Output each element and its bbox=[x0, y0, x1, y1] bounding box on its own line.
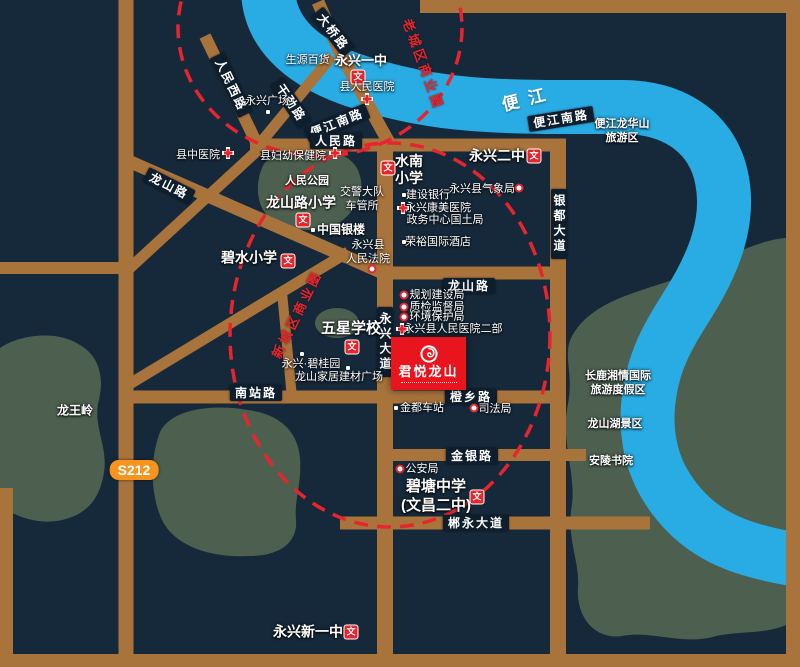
poi-label-line: 人民法院 bbox=[346, 252, 390, 266]
road-label: 人民路 bbox=[310, 133, 362, 149]
poi-label: 县人民医院 bbox=[340, 80, 395, 94]
business-circle-label: 老城区商业圈 bbox=[399, 16, 450, 113]
poi-label: 荣裕国际酒店 bbox=[405, 235, 471, 249]
place-dot-icon bbox=[311, 228, 315, 232]
school-icon: 文 bbox=[281, 254, 296, 269]
poi-label-line: 永兴二中 bbox=[469, 148, 525, 165]
poi-label: 碧塘中学(文昌二中) bbox=[401, 477, 471, 515]
poi-label: 永兴·碧桂园 bbox=[282, 357, 341, 371]
poi-label: 金都车站 bbox=[400, 401, 444, 415]
poi-label-line: 永兴·碧桂园 bbox=[282, 357, 341, 371]
school-icon: 文 bbox=[470, 490, 485, 505]
school-icon: 文 bbox=[296, 213, 311, 228]
poi-label-line: 中国银楼 bbox=[317, 223, 365, 238]
poi-label: 永兴广场 bbox=[245, 94, 289, 108]
poi-label-line: 龙山湖景区 bbox=[588, 417, 643, 431]
poi-label: 永兴新一中 bbox=[273, 624, 343, 641]
place-dot-icon bbox=[394, 406, 398, 410]
project-marker: 君悦龙山 bbox=[391, 337, 466, 390]
hospital-icon bbox=[222, 147, 234, 159]
poi-label-line: 永兴一中 bbox=[335, 53, 387, 69]
poi-label-line: 永兴新一中 bbox=[273, 624, 343, 641]
poi-label-line: 县妇幼保健院 bbox=[260, 149, 326, 163]
poi-label-line: 安陵书院 bbox=[589, 454, 633, 468]
bureau-icon bbox=[470, 404, 479, 413]
poi-label: 县中医院 bbox=[176, 148, 220, 162]
place-dot-icon bbox=[402, 193, 406, 197]
poi-label: 交警大队车管所 bbox=[340, 185, 384, 213]
road-label: 龙山路 bbox=[142, 167, 196, 205]
poi-label-line: 人民公园 bbox=[285, 174, 329, 188]
poi-label-line: 旅游度假区 bbox=[585, 383, 651, 397]
bureau-icon bbox=[400, 313, 409, 322]
poi-label: 安陵书院 bbox=[589, 454, 633, 468]
place-dot-icon bbox=[402, 240, 406, 244]
poi-label-line: 永兴县人民医院二部 bbox=[404, 322, 503, 336]
poi-label-line: 金都车站 bbox=[400, 401, 444, 415]
poi-label-line: 司法局 bbox=[479, 402, 512, 416]
poi-label: 中国银楼 bbox=[317, 223, 365, 238]
poi-label-line: 永兴县气象局 bbox=[449, 182, 515, 196]
poi-label-line: 永兴广场 bbox=[245, 94, 289, 108]
poi-label: 长鹿湘情国际旅游度假区 bbox=[585, 369, 651, 397]
poi-label-line: 车管所 bbox=[340, 199, 384, 213]
poi-label: 人民公园 bbox=[285, 174, 329, 188]
poi-label: 永兴县人民医院二部 bbox=[404, 322, 503, 336]
poi-label-line: 公安局 bbox=[406, 462, 439, 476]
poi-label: 永兴二中 bbox=[469, 148, 525, 165]
road-label: 人民西路 bbox=[209, 52, 252, 118]
poi-label-line: 龙山路小学 bbox=[266, 195, 336, 212]
poi-label-line: 生源百货 · bbox=[286, 53, 337, 67]
poi-label: 建设银行 bbox=[406, 188, 450, 202]
poi-label: 司法局 bbox=[479, 402, 512, 416]
poi-label-line: 水南 bbox=[395, 153, 423, 170]
poi-label: 龙山家居建材广场 bbox=[295, 370, 383, 384]
poi-label-line: 旅游区 bbox=[595, 131, 650, 145]
poi-label: 县妇幼保健院 bbox=[260, 149, 326, 163]
poi-label: 龙山路小学 bbox=[266, 195, 336, 212]
poi-label: 水南小学 bbox=[395, 153, 423, 187]
poi-label-line: 便江龙华山 bbox=[595, 117, 650, 131]
road-label: 金银路 bbox=[446, 448, 498, 464]
poi-label: 便江龙华山旅游区 bbox=[595, 117, 650, 145]
poi-label: 龙王岭 bbox=[57, 404, 93, 419]
poi-label-line: 永兴县 bbox=[346, 238, 390, 252]
poi-label-line: 建设银行 bbox=[406, 188, 450, 202]
poi-label: 生源百货 · bbox=[286, 53, 337, 67]
bureau-icon bbox=[368, 265, 377, 274]
poi-label: 碧水小学 bbox=[221, 250, 277, 267]
road-label: 南站路 bbox=[230, 385, 282, 401]
poi-label: 龙山湖景区 bbox=[588, 417, 643, 431]
poi-label: 永兴县人民法院 bbox=[346, 238, 390, 266]
poi-label-line: 县中医院 bbox=[176, 148, 220, 162]
bureau-icon bbox=[515, 184, 524, 193]
bureau-icon bbox=[400, 291, 409, 300]
poi-label: 永兴县气象局 bbox=[449, 182, 515, 196]
poi-label: 五星学校 bbox=[321, 320, 381, 338]
poi-label-line: 龙山家居建材广场 bbox=[295, 370, 383, 384]
poi-label-line: 小学 bbox=[395, 170, 423, 187]
poi-label-line: 五星学校 bbox=[321, 320, 381, 338]
school-icon: 文 bbox=[381, 161, 396, 176]
business-circle-label: 新城区商业圈 bbox=[266, 267, 325, 362]
bureau-icon bbox=[400, 303, 409, 312]
poi-label: 永兴一中 bbox=[335, 53, 387, 69]
school-icon: 文 bbox=[344, 625, 359, 640]
road-label: 郴永大道 bbox=[443, 515, 509, 531]
project-name: 君悦龙山 bbox=[398, 365, 458, 379]
poi-label-line: 碧塘中学 bbox=[401, 477, 471, 496]
bureau-icon bbox=[396, 465, 405, 474]
poi-label-line: 县人民医院 bbox=[340, 80, 395, 94]
road-label: 便江南路 bbox=[527, 106, 595, 132]
road-label: 大桥路 bbox=[311, 7, 356, 58]
school-icon: 文 bbox=[527, 149, 542, 164]
poi-label-line: 长鹿湘情国际 bbox=[585, 369, 651, 383]
project-tagline-rule bbox=[401, 382, 457, 383]
location-map: 大桥路人民西路干劲路便江南路便江南路人民路龙山路龙山路银都大道永兴大道南站路橙乡… bbox=[0, 0, 800, 667]
poi-label-line: 政务中心国土局 bbox=[407, 213, 484, 227]
poi-label-line: 碧水小学 bbox=[221, 250, 277, 267]
poi-label-line: 荣裕国际酒店 bbox=[405, 235, 471, 249]
poi-label-line: 交警大队 bbox=[340, 185, 384, 199]
highway-badge: S212 bbox=[110, 460, 159, 480]
project-logo-icon bbox=[419, 344, 439, 364]
poi-label: 公安局 bbox=[406, 462, 439, 476]
poi-label: 政务中心国土局 bbox=[407, 213, 484, 227]
place-dot-icon bbox=[266, 110, 270, 114]
map-labels: 大桥路人民西路干劲路便江南路便江南路人民路龙山路龙山路银都大道永兴大道南站路橙乡… bbox=[0, 0, 800, 667]
road-label: 银都大道 bbox=[551, 189, 567, 259]
school-icon: 文 bbox=[345, 340, 360, 355]
poi-label-line: 龙王岭 bbox=[57, 404, 93, 419]
place-dot-icon bbox=[300, 352, 304, 356]
poi-label-line: (文昌二中) bbox=[401, 496, 471, 515]
